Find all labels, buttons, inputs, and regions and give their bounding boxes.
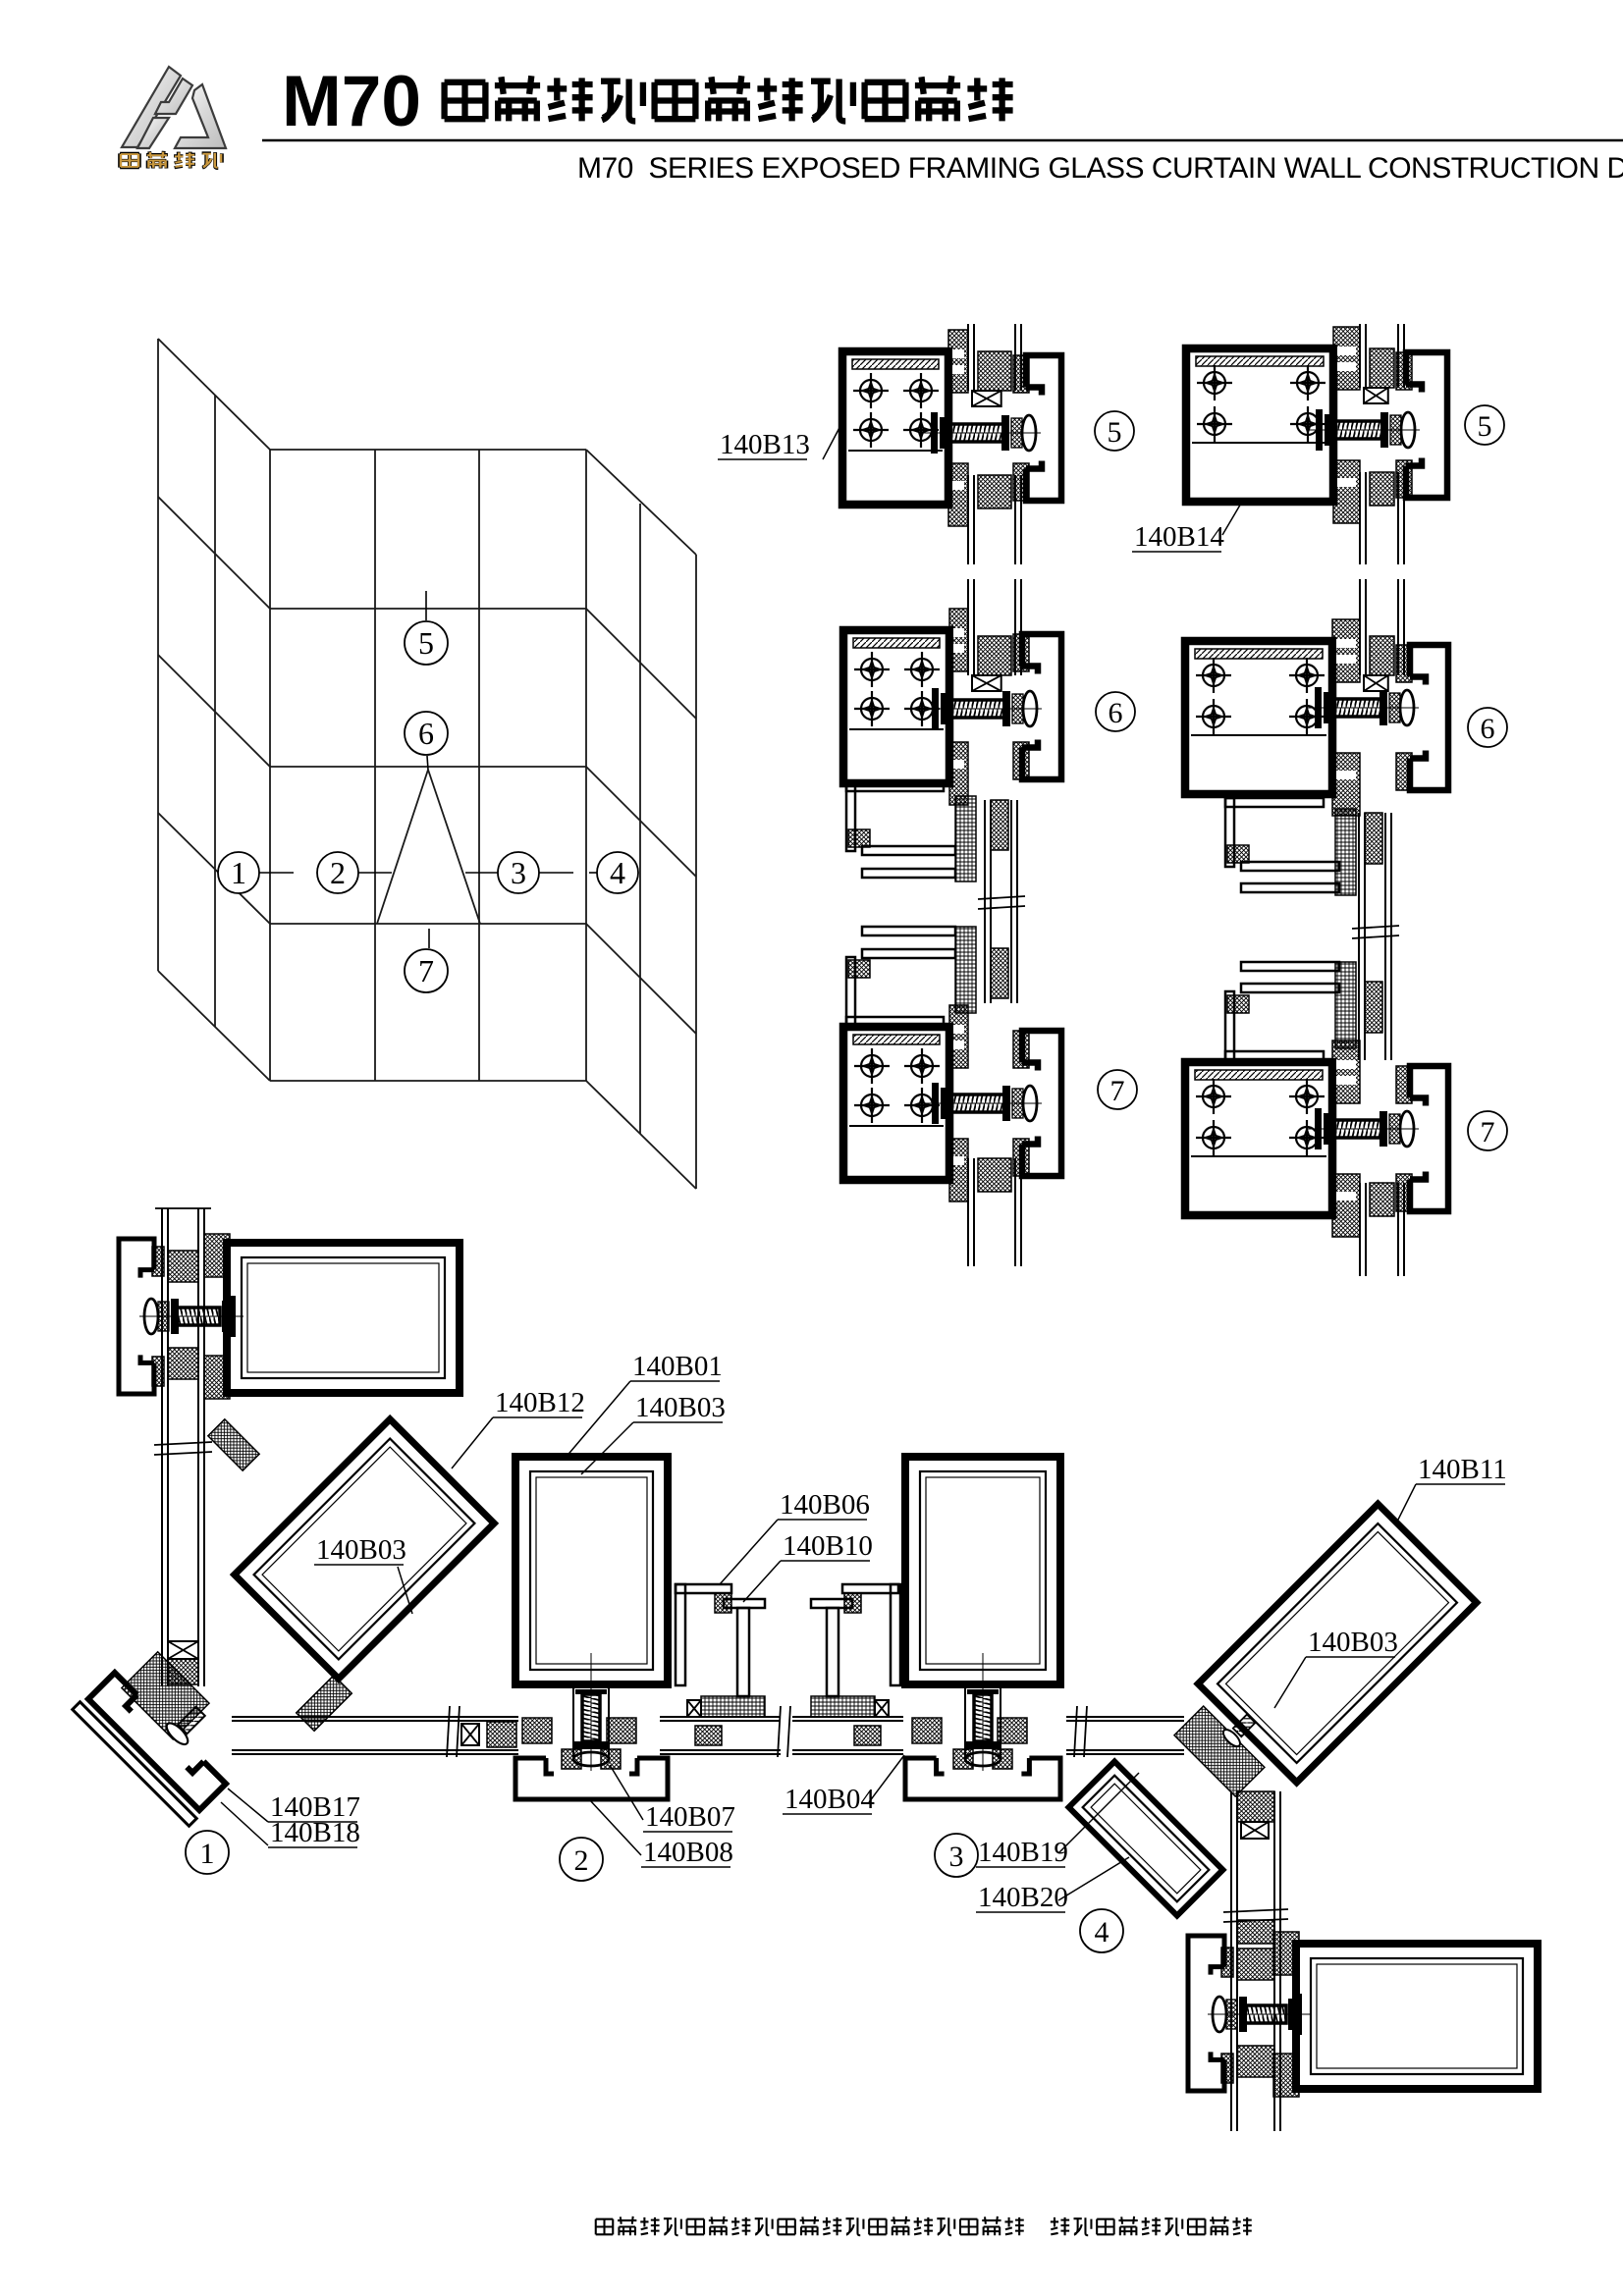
- svg-text:140B04: 140B04: [784, 1784, 875, 1815]
- svg-text:140B03: 140B03: [316, 1534, 406, 1566]
- svg-text:140B11: 140B11: [1418, 1454, 1507, 1485]
- svg-text:140B03: 140B03: [635, 1392, 726, 1423]
- svg-text:140B08: 140B08: [643, 1837, 733, 1868]
- svg-text:140B01: 140B01: [632, 1351, 723, 1382]
- svg-text:140B19: 140B19: [978, 1837, 1068, 1868]
- svg-text:1: 1: [200, 1838, 215, 1870]
- svg-text:7: 7: [418, 953, 434, 988]
- svg-text:140B07: 140B07: [645, 1801, 735, 1833]
- svg-text:4: 4: [1095, 1916, 1109, 1949]
- svg-text:M70 SERIES EXPOSED FRAMING GL: M70 SERIES EXPOSED FRAMING GLASS CURTAIN…: [577, 152, 1623, 185]
- svg-text:6: 6: [1481, 713, 1495, 745]
- svg-text:1: 1: [231, 855, 246, 890]
- svg-text:140B03: 140B03: [1308, 1627, 1398, 1658]
- svg-text:2: 2: [330, 855, 346, 890]
- svg-text:140B12: 140B12: [495, 1387, 585, 1418]
- svg-text:3: 3: [949, 1841, 964, 1873]
- svg-text:140B20: 140B20: [978, 1882, 1068, 1913]
- svg-text:140B13: 140B13: [720, 429, 810, 460]
- svg-text:2: 2: [574, 1844, 589, 1877]
- svg-text:M70: M70: [282, 62, 421, 141]
- svg-text:5: 5: [1478, 410, 1492, 443]
- svg-text:140B18: 140B18: [270, 1817, 360, 1848]
- svg-text:3: 3: [511, 855, 526, 890]
- svg-text:6: 6: [418, 716, 434, 751]
- svg-text:140B10: 140B10: [783, 1530, 873, 1562]
- svg-text:7: 7: [1110, 1075, 1125, 1107]
- svg-text:7: 7: [1481, 1116, 1495, 1148]
- svg-text:140B14: 140B14: [1134, 521, 1224, 553]
- svg-text:5: 5: [418, 625, 434, 661]
- svg-text:4: 4: [610, 855, 625, 890]
- svg-text:6: 6: [1109, 697, 1123, 729]
- svg-text:5: 5: [1108, 416, 1122, 449]
- svg-text:140B06: 140B06: [780, 1489, 870, 1521]
